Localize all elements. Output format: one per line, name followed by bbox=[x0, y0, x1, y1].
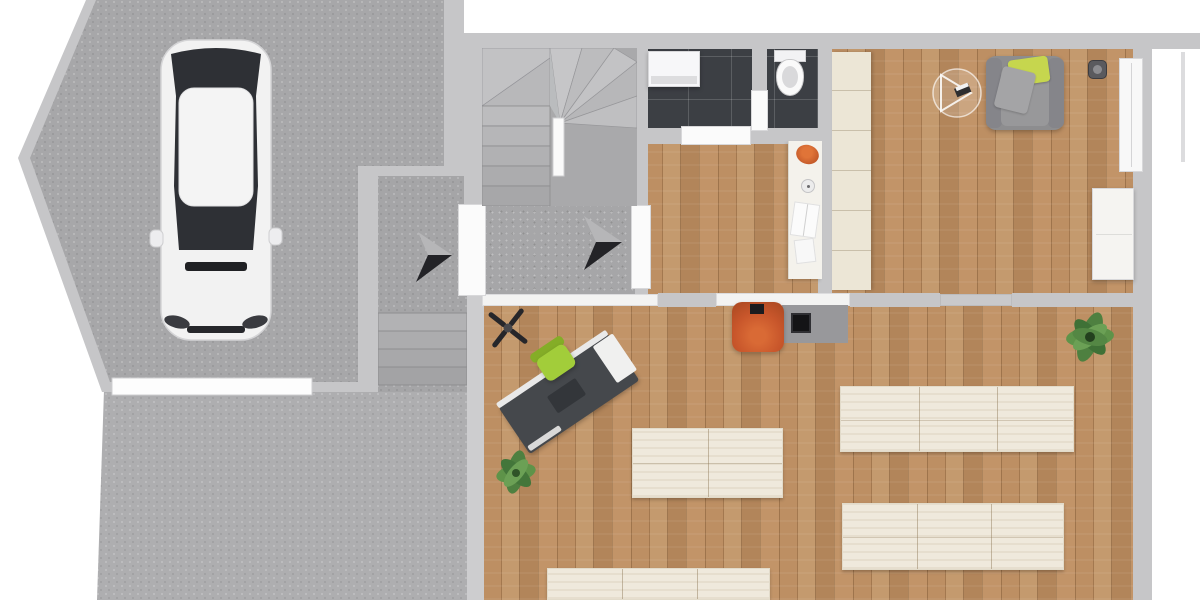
round-sink bbox=[801, 179, 815, 193]
door-bath-partition bbox=[751, 90, 768, 131]
garage-door bbox=[112, 378, 312, 395]
outdoor-steps bbox=[378, 313, 467, 385]
sink-drain bbox=[807, 185, 810, 188]
stair-left-flight bbox=[482, 106, 550, 206]
toilet-bowl bbox=[776, 59, 804, 96]
speaker-cone bbox=[1093, 65, 1102, 74]
potted-plant-large bbox=[1062, 308, 1118, 366]
table-seam bbox=[919, 387, 920, 451]
table-seam bbox=[633, 463, 782, 464]
wall-bath-partition bbox=[752, 48, 767, 92]
table-cluster-d bbox=[547, 568, 770, 600]
table-cluster-c bbox=[842, 503, 1064, 570]
wall-mid-a bbox=[658, 293, 716, 307]
newel-post bbox=[553, 118, 564, 176]
table-cluster-b bbox=[840, 386, 1074, 452]
exterior-pipe bbox=[1181, 52, 1185, 162]
counter bbox=[788, 141, 822, 279]
washing-machine bbox=[648, 51, 700, 87]
driveway bbox=[97, 390, 467, 600]
book-spine bbox=[803, 204, 808, 236]
stove bbox=[791, 313, 811, 333]
sideboard-seam bbox=[1096, 234, 1132, 235]
desk-group bbox=[495, 340, 655, 450]
tub-chair-notch bbox=[750, 304, 764, 314]
open-book-bottom bbox=[794, 238, 817, 264]
car-mirror-left bbox=[150, 230, 163, 247]
front-door bbox=[458, 204, 486, 296]
potted-plant-small bbox=[492, 446, 540, 500]
open-book-top bbox=[790, 201, 820, 238]
radiator-line bbox=[1131, 63, 1132, 167]
wardrobe-column bbox=[832, 52, 871, 290]
toilet bbox=[772, 50, 808, 98]
tub-chair bbox=[732, 302, 784, 352]
entry-walkway bbox=[378, 170, 467, 392]
table-cluster-a bbox=[632, 428, 783, 498]
car-roof bbox=[179, 88, 253, 206]
armchair-arm-right bbox=[1048, 58, 1064, 128]
table-seam bbox=[843, 537, 1063, 538]
threshold-lounge-openroom bbox=[940, 294, 1012, 306]
car-grille bbox=[187, 326, 245, 333]
wall-mid-c bbox=[1012, 293, 1135, 307]
car-mirror-right bbox=[269, 228, 282, 245]
table-seam bbox=[997, 387, 998, 451]
wall-mid-b bbox=[850, 293, 940, 307]
ceiling-lamp bbox=[930, 66, 984, 120]
table-seam bbox=[622, 569, 623, 599]
winder-staircase bbox=[482, 48, 637, 206]
direction-arrow bbox=[582, 214, 626, 272]
washer-front-band bbox=[651, 76, 697, 84]
armchair bbox=[986, 56, 1064, 130]
car-cowl-vent bbox=[185, 262, 247, 271]
radiator bbox=[1119, 58, 1143, 172]
door-hall-kitchenette bbox=[631, 205, 651, 289]
hearth-pad bbox=[782, 305, 848, 343]
wall-speaker bbox=[1088, 60, 1107, 79]
table-seam bbox=[841, 420, 1073, 421]
orange-basin bbox=[794, 142, 822, 167]
floor-plan-canvas bbox=[0, 0, 1200, 600]
wall-top bbox=[464, 33, 1200, 49]
sideboard bbox=[1092, 188, 1134, 280]
desk-end-panel bbox=[593, 333, 638, 383]
stair-winder-fan bbox=[550, 48, 637, 128]
table-seam bbox=[697, 569, 698, 599]
toilet-seat bbox=[782, 66, 798, 88]
car bbox=[149, 36, 283, 346]
door-bathroom bbox=[681, 126, 751, 145]
